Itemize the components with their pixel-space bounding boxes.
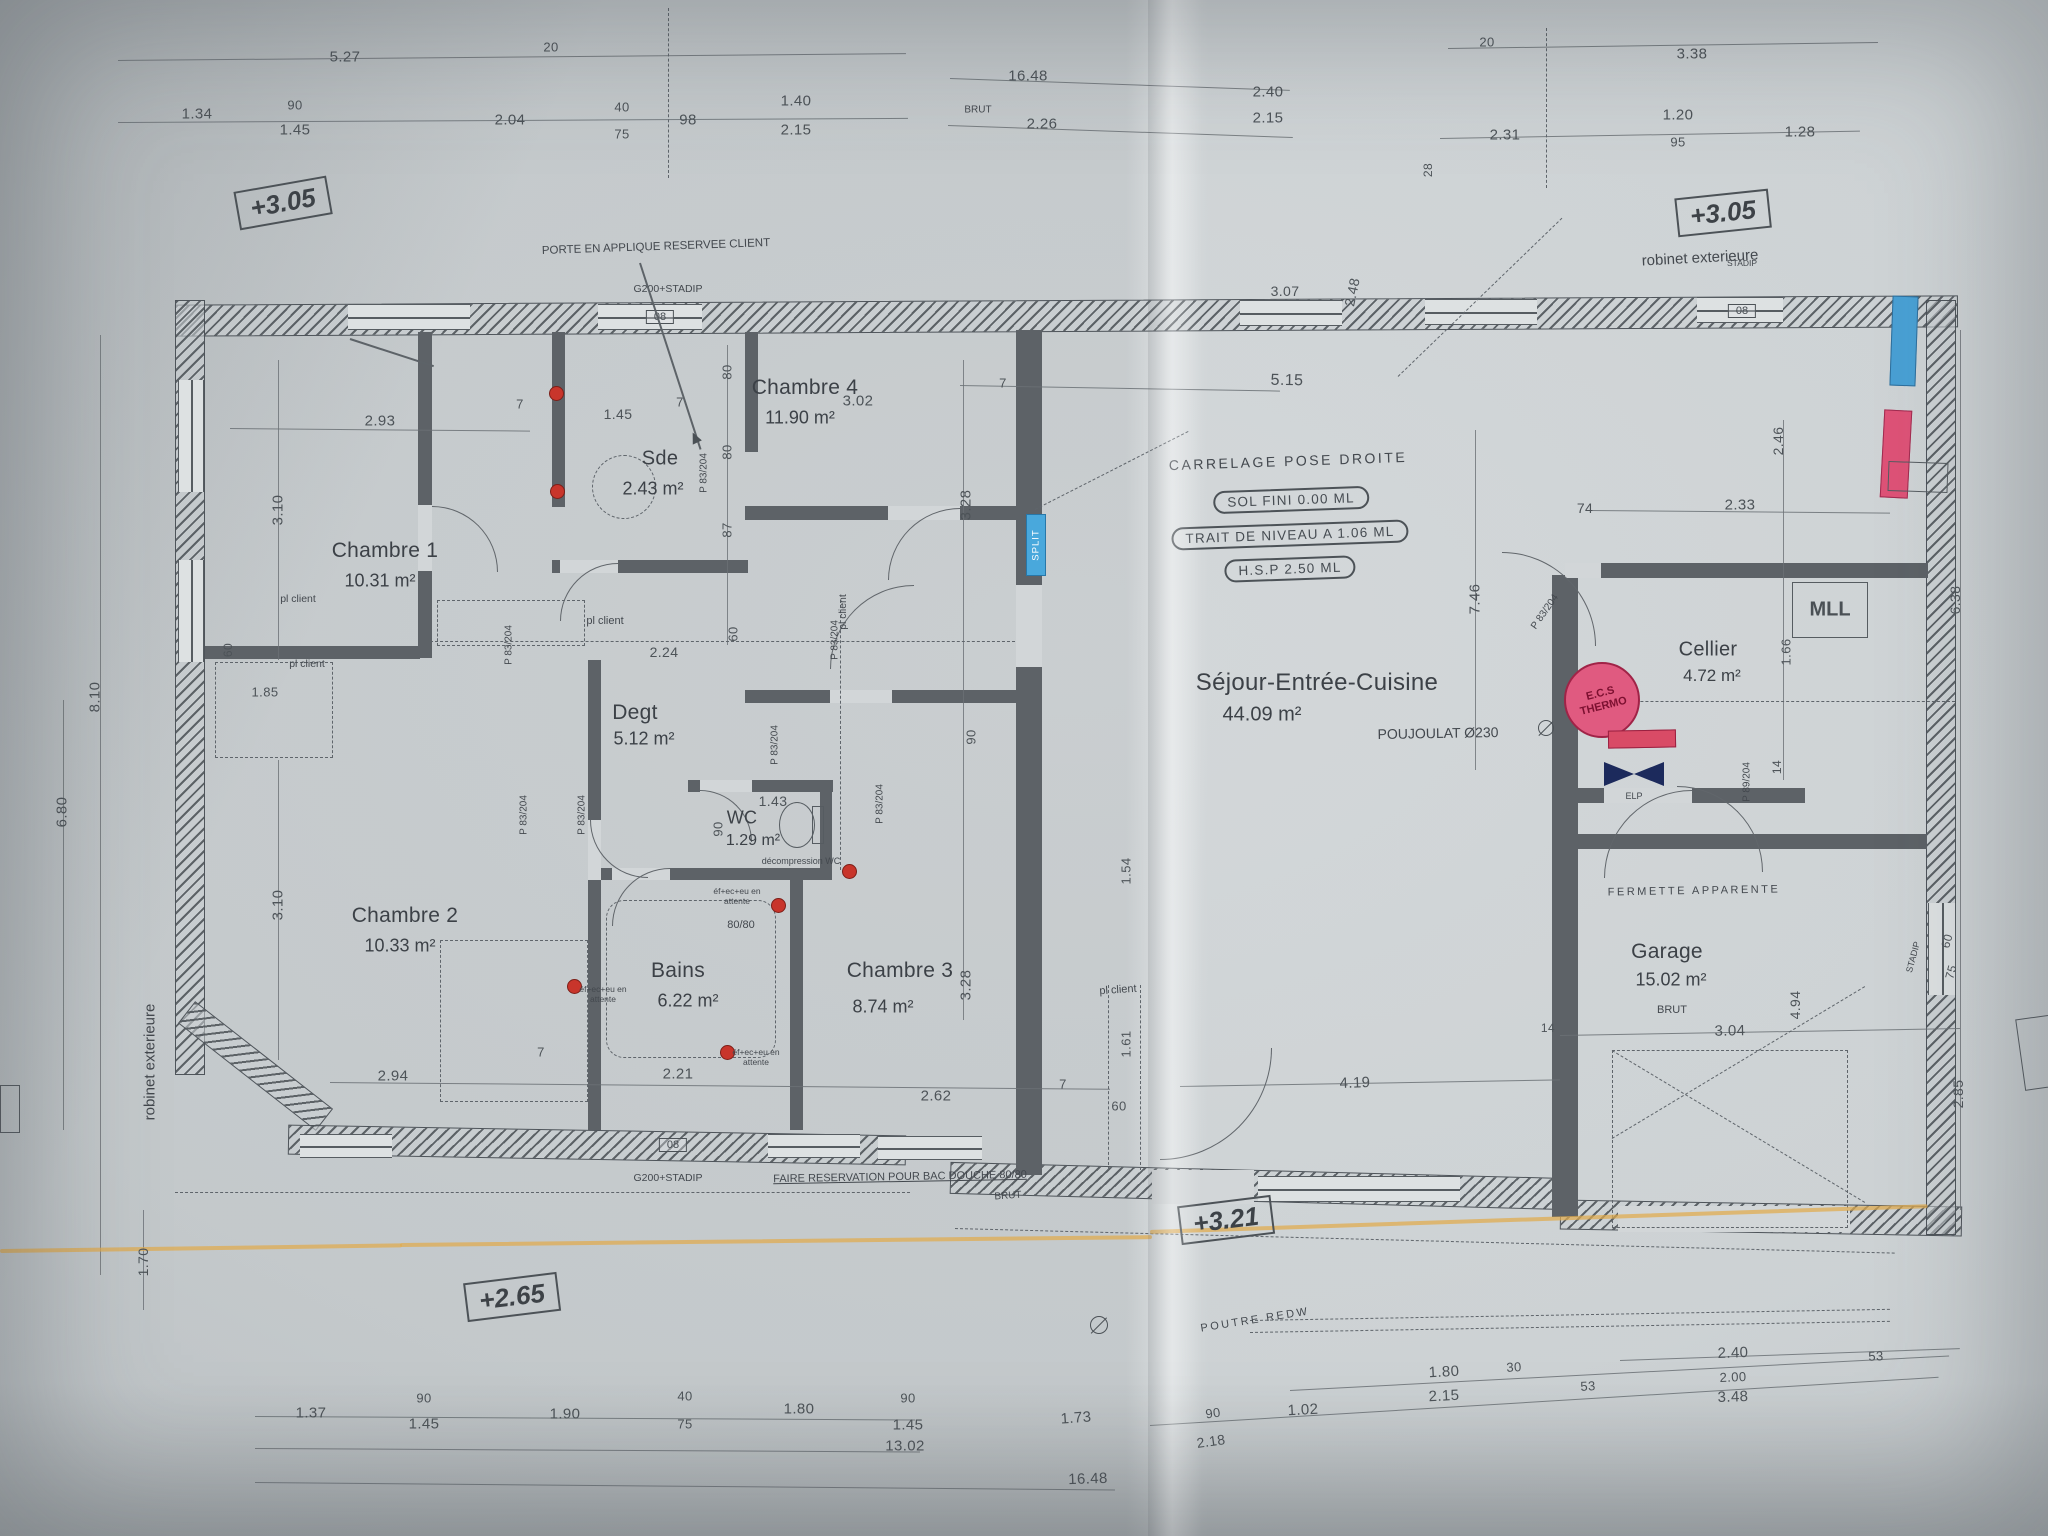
dimension-label: 2.40: [1253, 84, 1284, 101]
dimension-label: 20: [543, 40, 558, 55]
dimension-label: 20: [1479, 35, 1494, 50]
plumbing-waiting-label: éf+ec+eu en attente: [721, 1048, 791, 1068]
door-label: P 83/204: [577, 795, 588, 835]
dimension-line: [727, 345, 728, 645]
dimension-label: 30: [1506, 1359, 1522, 1375]
plumbing-point: [549, 386, 564, 401]
dimension-label: 1.61: [1119, 1031, 1134, 1058]
room-label-chambre-1: Chambre 1: [332, 539, 439, 563]
dimension-label: 60: [726, 626, 741, 641]
dimension-label: 4.94: [1787, 991, 1803, 1020]
room-area-degt: 5.12 m²: [613, 729, 674, 750]
dimension-line: [960, 385, 1280, 392]
dimension-label: 53: [1868, 1348, 1884, 1364]
annotation-poujoulat: POUJOULAT Ø230: [1377, 724, 1498, 742]
dimension-label: 16.48: [1008, 68, 1048, 85]
toilet-tank-icon: [812, 806, 824, 844]
dimension-label: 3.38: [1677, 46, 1708, 63]
closet-label-pl-client: pl client: [1099, 983, 1137, 998]
dimension-line: [1783, 420, 1784, 780]
dimension-label: 2.62: [921, 1088, 952, 1105]
room-area-chambre-2: 10.33 m²: [364, 936, 435, 957]
dimension-label: 7: [516, 397, 524, 412]
dimension-line: [1960, 330, 1961, 1210]
door-label: P 83/204: [519, 795, 530, 835]
dimension-label: 2.85: [1950, 1080, 1966, 1109]
dimension-label: 3.10: [270, 495, 287, 526]
dimension-label: 98: [679, 112, 697, 129]
wall-block-08: 08: [659, 1138, 687, 1152]
dashed-line: [1250, 1309, 1890, 1321]
dimension-label: 1.02: [1287, 1401, 1319, 1420]
room-label-garage: Garage: [1631, 940, 1703, 964]
plumbing-point: [550, 484, 565, 499]
small-outline-box: [1887, 461, 1948, 493]
door-label: P 83/204: [770, 725, 781, 765]
room-label-chambre-4: Chambre 4: [752, 376, 859, 400]
split-unit-label: SPLIT: [1031, 529, 1042, 560]
dimension-label: 2.33: [1725, 497, 1756, 514]
closet-label-pl-client: pl client: [586, 615, 623, 627]
dimension-label: 2.94: [378, 1068, 409, 1085]
dimension-label: 90: [900, 1391, 915, 1406]
dimension-label: 95: [1670, 135, 1685, 150]
floor-plan-photo: 5.272016.482.262.402.152.31203.381.20951…: [0, 0, 2048, 1536]
closet-label-pl-client: pl client: [280, 593, 316, 605]
washing-machine-label: MLL: [1809, 599, 1850, 622]
dimension-line: [255, 1482, 1115, 1491]
partial-marker-box: [2015, 1013, 2048, 1091]
elp-symbol-right-icon: [1634, 762, 1664, 786]
dimension-label: 60: [1111, 1099, 1126, 1114]
annotation-carrelage: CARRELAGE POSE DROITE: [1169, 449, 1408, 473]
dimension-label: 40: [614, 100, 629, 115]
window: [878, 1136, 982, 1160]
door-arc: [432, 506, 498, 572]
dimension-label: 5.27: [330, 49, 361, 66]
room-area-chambre-4: 11.90 m²: [765, 408, 835, 429]
window: [348, 304, 470, 330]
interior-wall: [745, 506, 1016, 520]
room-label-chambre-3: Chambre 3: [847, 959, 954, 983]
dimension-label: 2.46: [1770, 427, 1786, 456]
dimension-label: 80: [720, 364, 735, 379]
dimension-label: 2.15: [1253, 110, 1284, 127]
annotation-brut: BRUT: [994, 1190, 1022, 1203]
elevation-marker: +3.05: [233, 176, 332, 231]
dimension-label: 74: [1577, 500, 1593, 516]
annotation-stadip: STADIP: [1727, 258, 1757, 268]
dashed-outline: [1612, 1050, 1848, 1228]
dimension-label: 1.45: [280, 122, 311, 139]
dimension-label: 1.70: [135, 1248, 151, 1277]
blue-window-tag: [1889, 296, 1918, 387]
dimension-label: 3.28: [958, 970, 975, 1001]
annotation-fermette: FERMETTE APPARENTE: [1608, 883, 1781, 898]
dimension-label: 1.80: [784, 1401, 815, 1418]
partial-marker-box: [0, 1085, 20, 1133]
elevation-marker: +3.05: [1674, 189, 1771, 238]
plumbing-point: [771, 898, 786, 913]
room-area-sejour-entree-cuisine: 44.09 m²: [1223, 704, 1302, 727]
dimension-label: 1.40: [781, 93, 812, 110]
dimension-label: 14: [1770, 760, 1784, 774]
dimension-label: 1.45: [604, 406, 633, 422]
annotation-g200-stadip: G200+STADIP: [634, 1172, 703, 1184]
annotation-brut: BRUT: [1657, 1004, 1687, 1016]
dimension-label: 2.15: [1428, 1387, 1460, 1406]
dimension-label: 1.37: [296, 1405, 327, 1422]
dimension-label: 1.43: [759, 793, 788, 809]
dashed-line: [175, 1192, 910, 1193]
dimension-label: 1.73: [1060, 1408, 1092, 1427]
dimension-label: 1.20: [1663, 107, 1694, 124]
dimension-label: 3.48: [1717, 1388, 1748, 1406]
interior-wall: [790, 875, 803, 1130]
room-label-bains: Bains: [651, 959, 705, 983]
dimension-line: [963, 360, 964, 1020]
room-area-chambre-1: 10.31 m²: [344, 571, 415, 592]
room-area-cellier: 4.72 m²: [1683, 666, 1741, 686]
dimension-label: 90: [711, 821, 726, 836]
dimension-label: 80: [720, 444, 735, 459]
annotation-sol-fini: SOL FINI 0.00 ML: [1213, 486, 1369, 514]
dimension-line: [63, 700, 64, 1130]
highlighter-line: [400, 1235, 1152, 1246]
elp-symbol-left-icon: [1604, 762, 1634, 786]
paper-fold: [1148, 0, 1202, 1536]
dimension-line: [255, 1448, 920, 1453]
wall-block-08: 08: [1728, 304, 1756, 318]
dimension-label: 6.38: [1947, 586, 1963, 615]
annotation-hsp: H.S.P 2.50 ML: [1224, 555, 1356, 583]
dimension-label: 28: [1421, 163, 1435, 177]
dimension-label: 90: [287, 98, 302, 113]
dimension-label: 4.19: [1339, 1074, 1370, 1092]
dimension-line: [1448, 42, 1878, 49]
annotation-robinet-exterieur: robinet exterieure: [142, 1004, 159, 1121]
dimension-label: 2.26: [1027, 116, 1058, 133]
door-label: P 83/204: [504, 625, 515, 665]
dimension-label: 6.80: [54, 797, 71, 828]
room-label-cellier: Cellier: [1679, 639, 1738, 662]
dimension-label: 2.24: [650, 644, 679, 660]
window: [768, 1134, 860, 1158]
dimension-label: 75: [677, 1417, 692, 1432]
annotation-brut: BRUT: [964, 105, 991, 116]
room-label-chambre-2: Chambre 2: [352, 904, 459, 928]
interior-wall: [552, 332, 565, 507]
dimension-label: 3.07: [1271, 283, 1300, 299]
room-area-chambre-3: 8.74 m²: [852, 997, 913, 1018]
dimension-label: 7: [999, 376, 1007, 391]
dashed-line: [668, 8, 669, 178]
dimension-label: 90: [964, 729, 979, 744]
window: [178, 560, 204, 662]
interior-wall: [1016, 330, 1042, 1175]
dimension-label: 7.46: [1467, 584, 1484, 615]
interior-wall: [588, 660, 601, 1130]
poutre-symbol: [1090, 1316, 1108, 1334]
window: [1240, 300, 1342, 326]
dimension-label: 87: [720, 522, 735, 537]
dimension-label: 2.93: [365, 413, 396, 430]
room-area-sde: 2.43 m²: [622, 479, 683, 500]
window: [300, 1134, 392, 1158]
elevation-marker: +2.65: [463, 1272, 561, 1322]
dimension-label: 7: [537, 1045, 545, 1060]
dashed-outline: [215, 662, 333, 758]
dimension-label: 3.04: [1714, 1022, 1745, 1040]
floor-plan-drawing: 5.272016.482.262.402.152.31203.381.20951…: [0, 0, 2048, 1536]
window: [1425, 299, 1537, 325]
dimension-label: 2.15: [781, 122, 812, 139]
annotation-bac-80-80: 80/80: [727, 919, 755, 931]
annotation-g200-stadip: G200+STADIP: [634, 283, 703, 295]
dimension-label: 1.34: [182, 106, 213, 123]
window: [178, 380, 204, 492]
dimension-label: 90: [416, 1391, 431, 1406]
dimension-label: 1.66: [1779, 639, 1794, 666]
plumbing-waiting-label: éf+ec+eu en attente: [568, 985, 638, 1005]
dimension-label: 1.45: [893, 1417, 924, 1434]
door-opening: [1565, 563, 1601, 578]
dimension-label: 2.40: [1717, 1344, 1748, 1362]
elp-label: ELP: [1625, 791, 1642, 801]
dimension-line: [950, 78, 1290, 91]
dimension-line: [1560, 1028, 1960, 1036]
toilet-icon: [779, 802, 815, 848]
room-area-garage: 15.02 m²: [1635, 970, 1706, 991]
dimension-line: [1620, 1348, 1960, 1361]
dimension-label: 14: [1541, 1021, 1555, 1035]
door-label: P 83/204: [875, 784, 886, 824]
dimension-label: 5.15: [1270, 372, 1303, 391]
dashed-line: [1546, 28, 1547, 188]
dimension-label: 53: [1580, 1378, 1596, 1394]
dimension-line: [118, 53, 906, 61]
annotation-porte-applique: PORTE EN APPLIQUE RESERVEE CLIENT: [542, 237, 771, 257]
dimension-label: 1.80: [1428, 1363, 1460, 1382]
door-label: P 83/204: [699, 453, 710, 493]
interior-wall: [1552, 575, 1578, 1217]
dimension-label: 16.48: [1068, 1470, 1108, 1488]
interior-wall: [1600, 563, 1928, 578]
dashed-line: [1250, 1321, 1890, 1333]
interior-wall: [418, 332, 432, 658]
leader-arrow-icon: [688, 430, 702, 444]
highlighter-line: [0, 1243, 402, 1252]
dimension-label: 60: [221, 643, 235, 657]
annotation-decompression-wc: décompression WC: [762, 856, 841, 866]
room-label-degt: Degt: [612, 701, 658, 725]
dimension-label: 75: [614, 127, 629, 142]
dashed-line: [1108, 985, 1109, 1170]
dimension-label: 1.28: [1785, 124, 1816, 141]
door-opening: [1016, 585, 1042, 667]
dimension-label: 3.10: [270, 890, 287, 921]
dimension-label: 1.85: [252, 685, 279, 700]
dimension-label: 40: [677, 1389, 692, 1404]
dimension-line: [1150, 1377, 1939, 1426]
dimension-label: 90: [1204, 1405, 1221, 1422]
annotation-stadip: STADIP: [1904, 940, 1922, 973]
dimension-label: 1.45: [409, 1416, 440, 1433]
annotation-trait-niveau: TRAIT DE NIVEAU A 1.06 ML: [1171, 519, 1409, 550]
dimension-label: 2.31: [1490, 127, 1521, 144]
window: [1258, 1176, 1460, 1202]
door-label: P 83/204: [830, 620, 841, 660]
room-label-sejour-entree-cuisine: Séjour-Entrée-Cuisine: [1196, 669, 1438, 697]
dimension-label: 1.90: [550, 1406, 581, 1423]
dimension-label: 8.10: [87, 682, 104, 713]
dimension-label: 2.00: [1719, 1369, 1746, 1385]
closet-label-pl-client: pl client: [289, 658, 325, 670]
plumbing-point: [842, 864, 857, 879]
room-label-wc: WC: [727, 808, 758, 829]
dimension-label: 2.21: [663, 1066, 694, 1083]
room-area-wc: 1.29 m²: [726, 832, 780, 850]
red-label-bar: [1608, 729, 1676, 748]
dimension-line: [948, 125, 1293, 138]
dimension-label: 2.04: [495, 112, 526, 129]
plumbing-waiting-label: éf+ec+eu en attente: [702, 887, 772, 907]
dimension-label: 13.02: [885, 1438, 925, 1455]
dimension-line: [100, 335, 101, 1275]
room-area-bains: 6.22 m²: [657, 991, 718, 1012]
dimension-label: 7: [1059, 1077, 1067, 1092]
diameter-symbol: [1538, 720, 1554, 736]
dimension-label: 3.28: [958, 490, 975, 521]
dimension-label: 1.54: [1119, 858, 1134, 885]
door-label-garage: P 89/204: [1742, 762, 1753, 802]
room-label-sde: Sde: [642, 448, 679, 471]
dashed-line: [1140, 985, 1141, 1170]
dimension-line: [255, 1416, 915, 1421]
dashed-outline: [440, 940, 588, 1102]
